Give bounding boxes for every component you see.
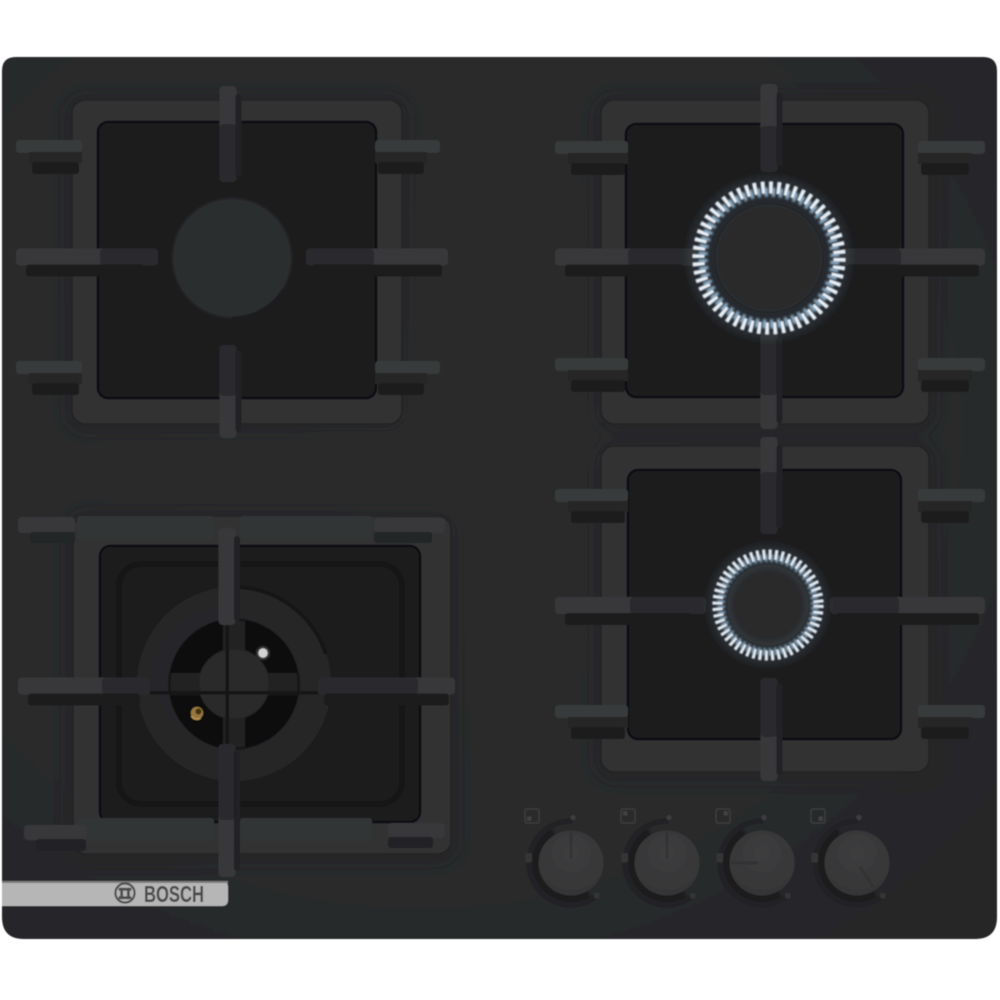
- svg-text:BOSCH: BOSCH: [144, 881, 204, 907]
